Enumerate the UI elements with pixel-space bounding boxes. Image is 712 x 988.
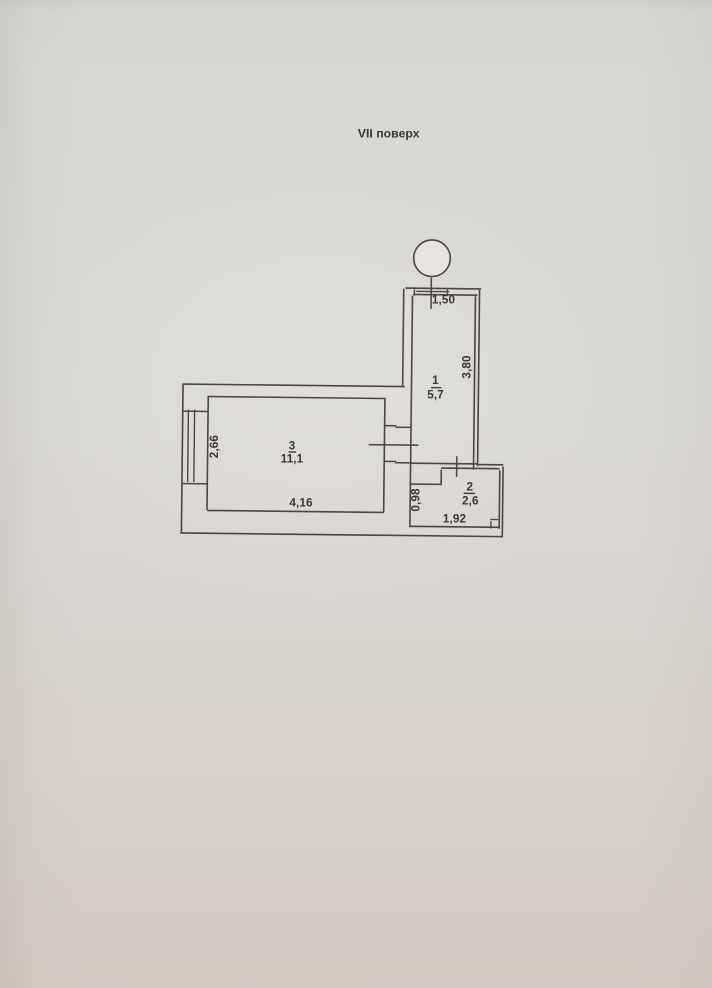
svg-text:1,50: 1,50 bbox=[432, 293, 456, 306]
svg-text:VII поверх: VII поверх bbox=[358, 127, 420, 141]
svg-text:2,66: 2,66 bbox=[208, 435, 221, 459]
svg-text:0,98: 0,98 bbox=[410, 488, 423, 512]
svg-text:2: 2 bbox=[466, 481, 473, 494]
svg-text:3: 3 bbox=[289, 439, 296, 452]
svg-text:11,1: 11,1 bbox=[281, 452, 304, 465]
svg-text:1: 1 bbox=[432, 374, 439, 387]
svg-text:1,92: 1,92 bbox=[443, 512, 467, 525]
svg-text:4,16: 4,16 bbox=[289, 497, 313, 510]
svg-text:2,6: 2,6 bbox=[462, 494, 479, 507]
svg-text:5,7: 5,7 bbox=[427, 389, 444, 402]
svg-text:3,80: 3,80 bbox=[460, 355, 473, 379]
